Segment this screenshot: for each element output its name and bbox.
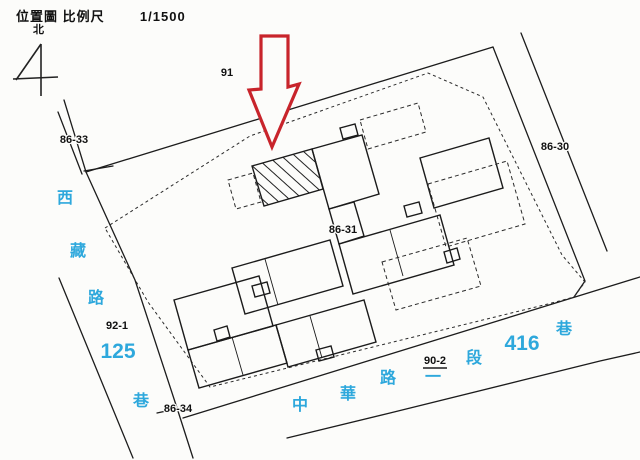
highlighted-building bbox=[252, 149, 323, 206]
location-map-page: 位置圖 比例尺 1/1500 北 bbox=[0, 0, 640, 460]
street-label-char: 段 bbox=[466, 348, 483, 367]
location-arrow bbox=[249, 36, 299, 147]
street-label-char: 西 bbox=[57, 189, 73, 207]
parcel-label-86-31: 86-31 bbox=[329, 224, 357, 236]
map-labels: 9186-3386-3086-3192-186-3490-2西藏路125巷中華路… bbox=[57, 67, 573, 415]
street-label-char: 巷 bbox=[132, 391, 150, 410]
north-arrow-icon bbox=[13, 44, 58, 96]
parcel-label-86-33: 86-33 bbox=[60, 134, 88, 146]
street-label-char: 華 bbox=[340, 384, 356, 403]
street-label-char: 路 bbox=[88, 288, 105, 307]
street-label-char: 中 bbox=[292, 395, 308, 414]
parcel-label-90-2: 90-2 bbox=[424, 355, 446, 367]
cadastral-map: 北 bbox=[0, 0, 640, 460]
parcel-label-92-1: 92-1 bbox=[106, 320, 128, 332]
street-label-char: 路 bbox=[380, 368, 397, 387]
street-label-char: 416 bbox=[504, 332, 539, 355]
parcel-label-86-30: 86-30 bbox=[541, 141, 569, 153]
street-label-char: 巷 bbox=[555, 319, 573, 338]
parcel-label-91: 91 bbox=[221, 67, 233, 79]
north-label: 北 bbox=[33, 22, 44, 36]
street-label-char: 一 bbox=[425, 369, 441, 386]
building-outlines bbox=[174, 124, 503, 388]
street-label-char: 藏 bbox=[70, 241, 86, 260]
street-label-char: 125 bbox=[100, 340, 135, 363]
parcel-label-86-34: 86-34 bbox=[164, 403, 193, 415]
